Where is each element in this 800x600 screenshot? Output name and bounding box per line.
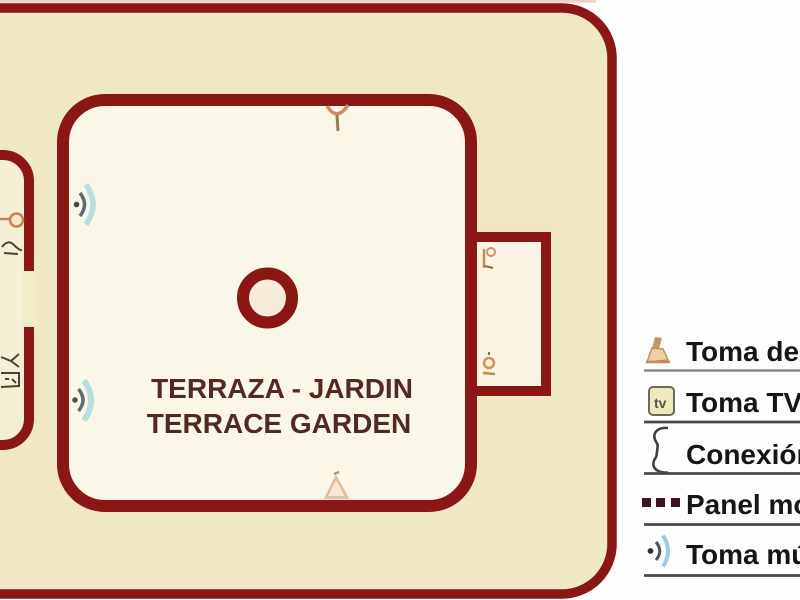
svg-text:TERRAZA - JARDIN: TERRAZA - JARDIN xyxy=(151,373,413,404)
svg-text:Toma de agua: Toma de agua xyxy=(686,336,800,367)
svg-text:Panel móvil: Panel móvil xyxy=(686,489,800,520)
svg-text:Toma música: Toma música xyxy=(686,539,800,570)
svg-text:TERRACE GARDEN: TERRACE GARDEN xyxy=(147,408,411,439)
svg-text:Toma TV/SAT: Toma TV/SAT xyxy=(686,387,800,418)
svg-text:tv: tv xyxy=(654,395,667,411)
svg-text:Conexión tel.: Conexión tel. xyxy=(686,439,800,470)
